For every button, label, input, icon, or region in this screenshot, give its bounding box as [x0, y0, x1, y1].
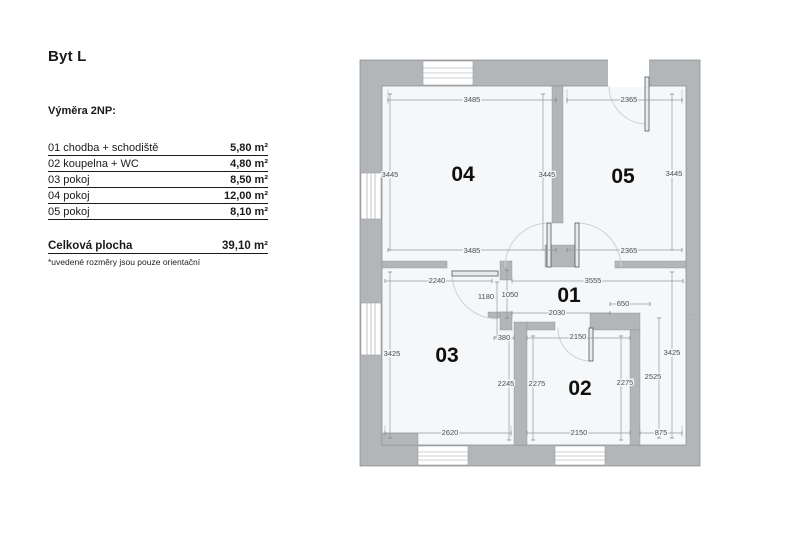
door-leaf	[547, 223, 551, 267]
dimension-label: 2275	[529, 379, 546, 388]
dimension-label: 1050	[502, 290, 519, 299]
wall-segment	[615, 261, 686, 268]
dimension-label: 1180	[478, 292, 494, 301]
entry-door-opening	[608, 59, 649, 87]
wall-segment	[382, 261, 447, 268]
room-number-label: 04	[451, 163, 475, 186]
dimension-label: 2240	[429, 276, 446, 285]
wall-segment	[527, 322, 555, 330]
room-number-label: 02	[568, 377, 591, 400]
dimension-label: 2150	[570, 332, 587, 341]
door-leaf	[452, 271, 498, 276]
dimension-label: 3485	[464, 246, 481, 255]
dimension-label: 2620	[442, 428, 459, 437]
dimension-label: 380	[498, 333, 511, 342]
dimension-label: 3555	[585, 276, 602, 285]
wall-segment	[552, 86, 563, 223]
window	[555, 446, 605, 465]
window	[418, 446, 468, 465]
floorplan-page: Byt L Výměra 2NP: 01 chodba + schodiště …	[0, 0, 800, 534]
wall-segment	[590, 313, 640, 330]
wall-segment	[500, 261, 512, 280]
dimension-label: 3425	[384, 349, 401, 358]
wall-segment	[382, 433, 418, 445]
wall-segment	[500, 312, 512, 330]
dimension-label: 2030	[549, 308, 566, 317]
floorplan-drawing: 3485 2365 3445 3445 3445 3485 2365 2240 …	[0, 0, 800, 534]
room-number-label: 05	[611, 165, 635, 188]
wall-segment	[630, 330, 640, 445]
dimension-label: 3445	[666, 169, 683, 178]
dimension-label: 2525	[645, 372, 662, 381]
wall-segment	[514, 322, 527, 445]
door-leaf	[645, 77, 649, 131]
dimension-label: 2365	[621, 246, 638, 255]
dimension-label: 3485	[464, 95, 481, 104]
door-leaf	[575, 223, 579, 267]
room-number-label: 03	[435, 344, 458, 367]
dimension-label: 650	[617, 299, 630, 308]
dimension-label: 2245	[498, 379, 515, 388]
dimension-label: 3445	[539, 170, 556, 179]
dimension-label: 2150	[571, 428, 588, 437]
room-number-label: 01	[557, 284, 581, 307]
door-leaf	[589, 328, 593, 361]
dimension-label: 2275	[617, 378, 634, 387]
dimension-label: 3425	[664, 348, 681, 357]
dimension-label: 875	[655, 428, 668, 437]
dimension-label: 2365	[621, 95, 638, 104]
dimension-label: 3445	[382, 170, 399, 179]
